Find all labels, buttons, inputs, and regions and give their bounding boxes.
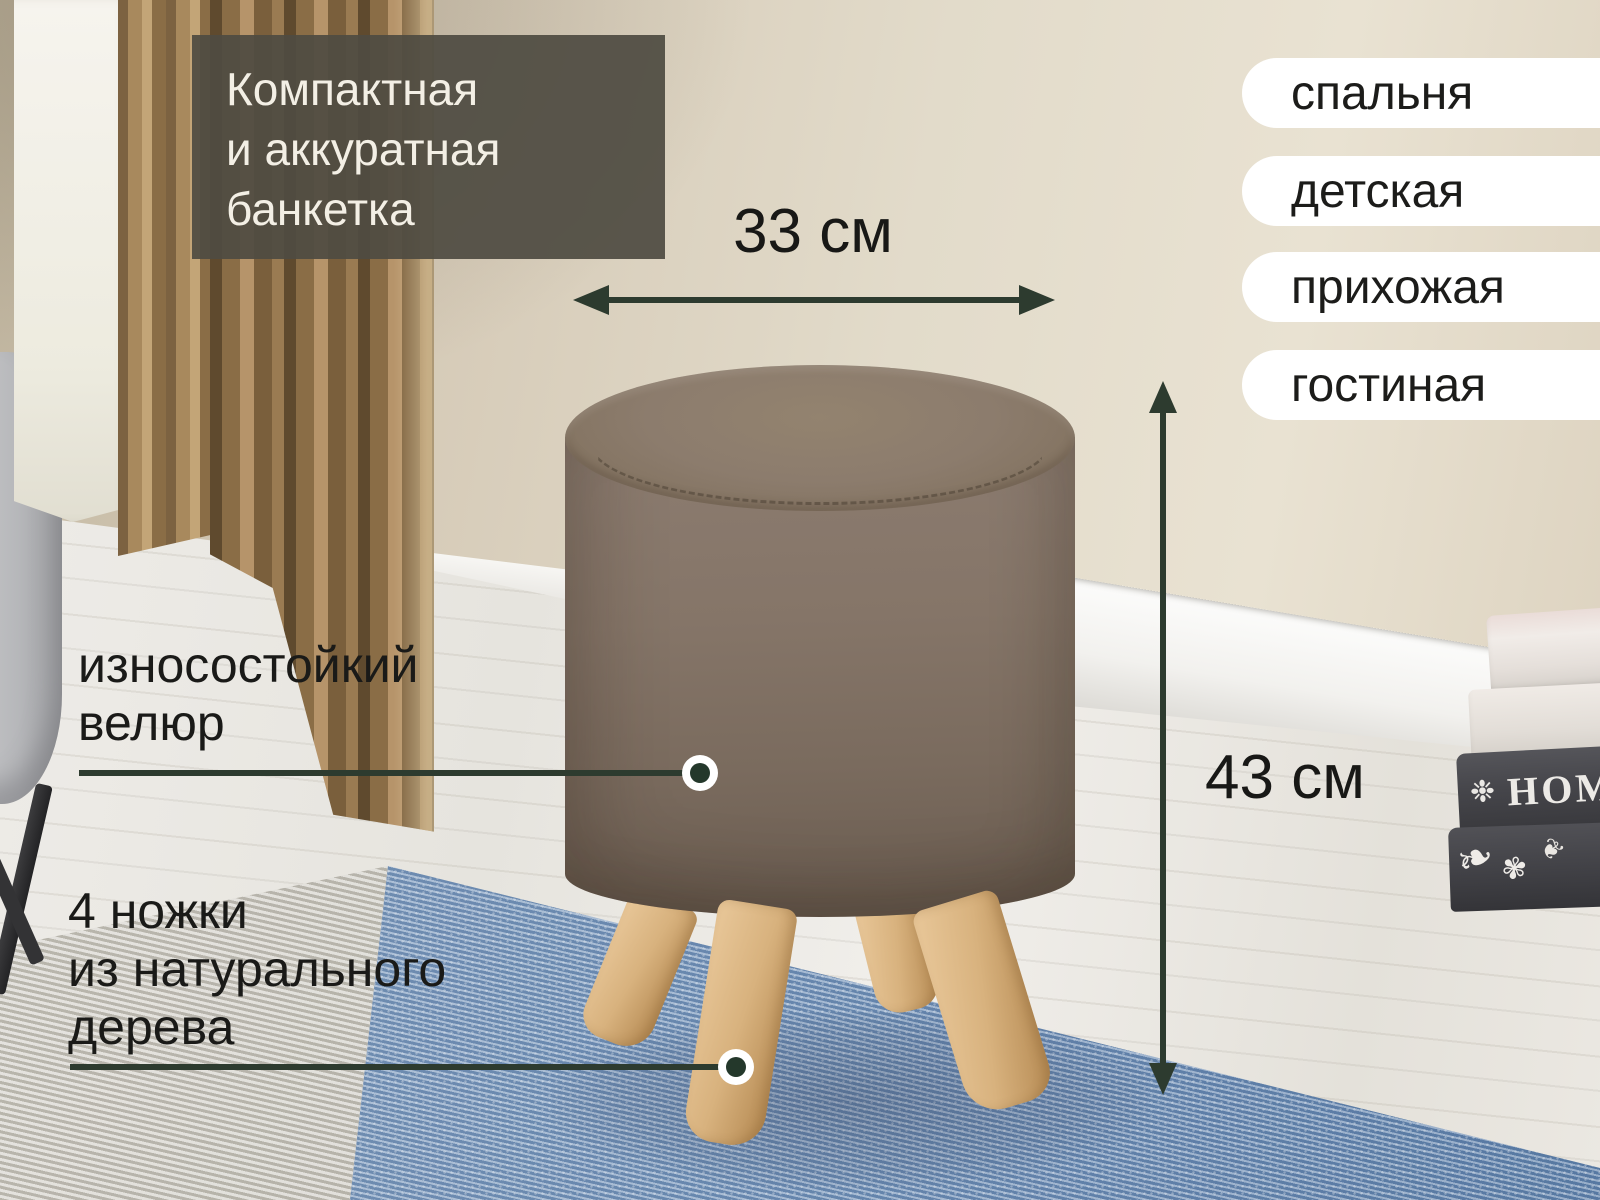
height-arrow-bottom-head-icon xyxy=(1149,1063,1177,1095)
room-tag-label: прихожая xyxy=(1291,260,1505,315)
height-dimension-label: 43 см xyxy=(1205,742,1365,813)
floral-ornament-icon: ❦ xyxy=(1534,831,1570,869)
callout-velour-dot xyxy=(682,755,718,791)
sheer-curtain xyxy=(14,0,132,522)
callout-legs-dot xyxy=(718,1049,754,1085)
room-tag-bedroom: спальня xyxy=(1242,58,1600,128)
room-tag-label: гостиная xyxy=(1291,358,1486,413)
floral-ornament-icon: ✾ xyxy=(1499,850,1530,889)
callout-legs-label: 4 ножки из натурального дерева xyxy=(68,882,446,1056)
callout-legs-line xyxy=(70,1064,722,1070)
width-dimension-label: 33 см xyxy=(573,196,1053,267)
height-arrow-shaft xyxy=(1160,407,1166,1071)
width-arrow-shaft xyxy=(600,297,1028,303)
book-spine-title: HOME xyxy=(1506,761,1600,815)
width-arrow-right-head-icon xyxy=(1019,285,1055,315)
product-image: ❉ HOME ❧ ✾ ❦ Компактная и аккуратная бан… xyxy=(0,0,1600,1200)
room-tag-label: спальня xyxy=(1291,66,1473,121)
book-home: ❉ HOME xyxy=(1456,746,1600,834)
room-tag-living-room: гостиная xyxy=(1242,350,1600,420)
room-tag-hallway: прихожая xyxy=(1242,252,1600,322)
book-ornament-icon: ❉ xyxy=(1469,777,1496,808)
width-arrow-left-head-icon xyxy=(573,285,609,315)
callout-velour-label: износостойкий велюр xyxy=(78,636,418,752)
book-ornamented: ❧ ✾ ❦ xyxy=(1448,822,1600,912)
floral-ornament-icon: ❧ xyxy=(1449,828,1501,889)
room-tag-label: детская xyxy=(1291,164,1464,219)
room-tag-kids-room: детская xyxy=(1242,156,1600,226)
callout-velour-line xyxy=(79,770,687,776)
book-white-top xyxy=(1486,607,1600,694)
height-arrow-top-head-icon xyxy=(1149,381,1177,413)
